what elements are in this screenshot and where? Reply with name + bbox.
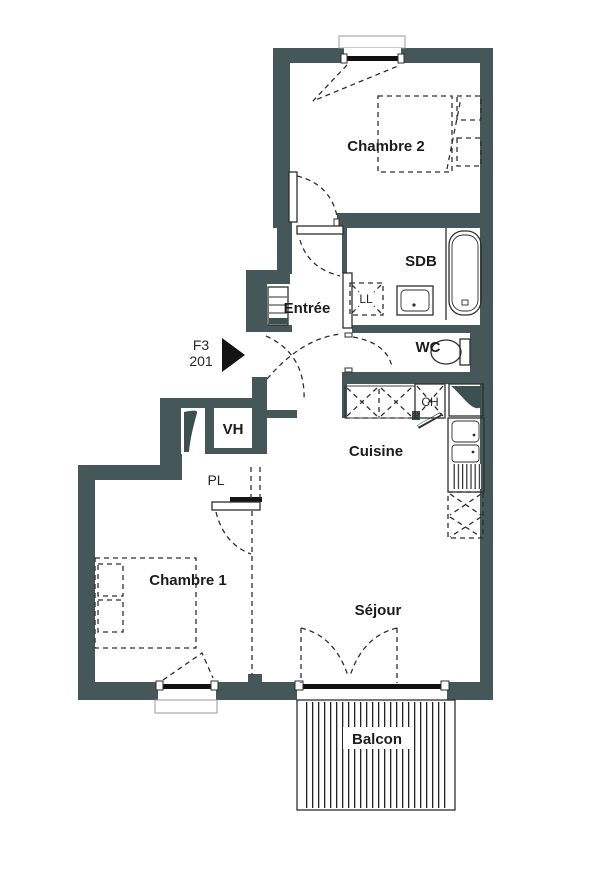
entrance-door-arc [266, 336, 304, 401]
wall-wc-top [352, 325, 480, 333]
room-label-vh: VH [223, 421, 244, 438]
pillow [98, 564, 123, 596]
washbasin-tap [412, 303, 415, 306]
sink-drain [473, 434, 476, 437]
wall-hall-bar [267, 410, 297, 418]
sink-basin [452, 421, 479, 442]
wall-chambre1-bottom-b [216, 682, 297, 700]
door-frame [441, 681, 449, 690]
sink-drain [472, 451, 475, 454]
window-frame [156, 681, 163, 690]
wall-sejour-bottom-right [447, 682, 493, 700]
unit-type-label: F3 [193, 337, 210, 353]
wall-jog [277, 222, 292, 274]
balcony-decking [302, 702, 450, 808]
room-label-cuisine: Cuisine [349, 443, 403, 460]
bed [378, 96, 452, 172]
wardrobe-swing [447, 98, 461, 169]
wall-chambre1-bottom-a [78, 682, 158, 700]
sink-drainer [451, 464, 481, 489]
wall-chambre1-left [78, 465, 95, 700]
nightstand [457, 96, 481, 120]
room-label-sdb: SDB [405, 253, 437, 270]
window-glazing [161, 684, 213, 689]
room-label-balcon: Balcon [352, 731, 402, 748]
counter-x [347, 388, 411, 417]
room-label-pl: PL [207, 472, 224, 488]
chambre2-furniture [378, 96, 481, 172]
chambre2-door-arc [297, 176, 337, 216]
door-frame [345, 368, 352, 372]
hall-door-leaf [297, 226, 343, 234]
worktop-x [450, 494, 481, 537]
room-label-wc: WC [416, 339, 441, 356]
washer-label: LL [359, 292, 373, 306]
room-label-sejour: Séjour [355, 602, 402, 619]
window-sill [339, 36, 405, 48]
walls [78, 48, 493, 700]
window-frame [398, 54, 404, 63]
balcony-door-glazing [303, 684, 443, 689]
wall-entree-top [246, 270, 290, 284]
room-label-chambre1: Chambre 1 [149, 572, 227, 589]
cuisine-fixtures: CH [345, 384, 484, 538]
sdb-fixtures: LL [350, 228, 481, 320]
entrance-marker [222, 338, 245, 372]
sink-basin [452, 445, 479, 462]
water-heater-label: CH [421, 395, 438, 409]
entrance-door-arc [267, 334, 341, 379]
chambre1-door-leaf [212, 502, 260, 510]
door-frame [345, 333, 352, 337]
window-sill [155, 700, 217, 713]
chambre1-door-arc [216, 512, 251, 554]
wc-door-arc [353, 337, 392, 367]
entrance-door-sill [269, 318, 288, 324]
hall-door-arc [300, 240, 340, 276]
worktop [448, 492, 483, 538]
room-label-entree: Entrée [284, 300, 331, 317]
wall-chambre2-sdb [337, 213, 480, 228]
unit-number-label: 201 [189, 353, 213, 369]
window-frame [341, 54, 347, 63]
bathtub [449, 231, 481, 315]
wall-post [248, 674, 262, 684]
window-swing [163, 653, 213, 680]
wall-entree-bottom [258, 325, 292, 332]
wall-left-upper [273, 48, 290, 228]
balcony-door-arc [350, 628, 397, 676]
wall-right [480, 48, 493, 700]
wall-sdb-left [342, 228, 347, 273]
wall-wc-bottom [342, 372, 480, 384]
room-label-chambre2: Chambre 2 [347, 138, 425, 155]
entrance-arrow-icon [222, 338, 245, 372]
washbasin-inner [401, 290, 429, 311]
cuisine-door-leaf-inner [418, 414, 440, 426]
balcony [297, 700, 455, 810]
nightstand [457, 138, 481, 166]
floor-plan: LL CH Chambr [0, 0, 611, 890]
door-frame [295, 681, 303, 690]
fridge-icon [451, 386, 481, 408]
window-swing [313, 65, 398, 101]
wall-wc-right [470, 325, 480, 384]
balcony-door-arc [301, 628, 348, 676]
pl-door-rail [230, 497, 262, 502]
window-glazing [344, 56, 401, 61]
chambre2-door-leaf [289, 172, 297, 222]
window-frame [211, 681, 218, 690]
wall-entree-left [246, 284, 267, 332]
bathtub-drain [462, 300, 468, 305]
pillow [98, 600, 123, 632]
wall-counter-edge [342, 384, 347, 418]
counter [345, 386, 415, 418]
